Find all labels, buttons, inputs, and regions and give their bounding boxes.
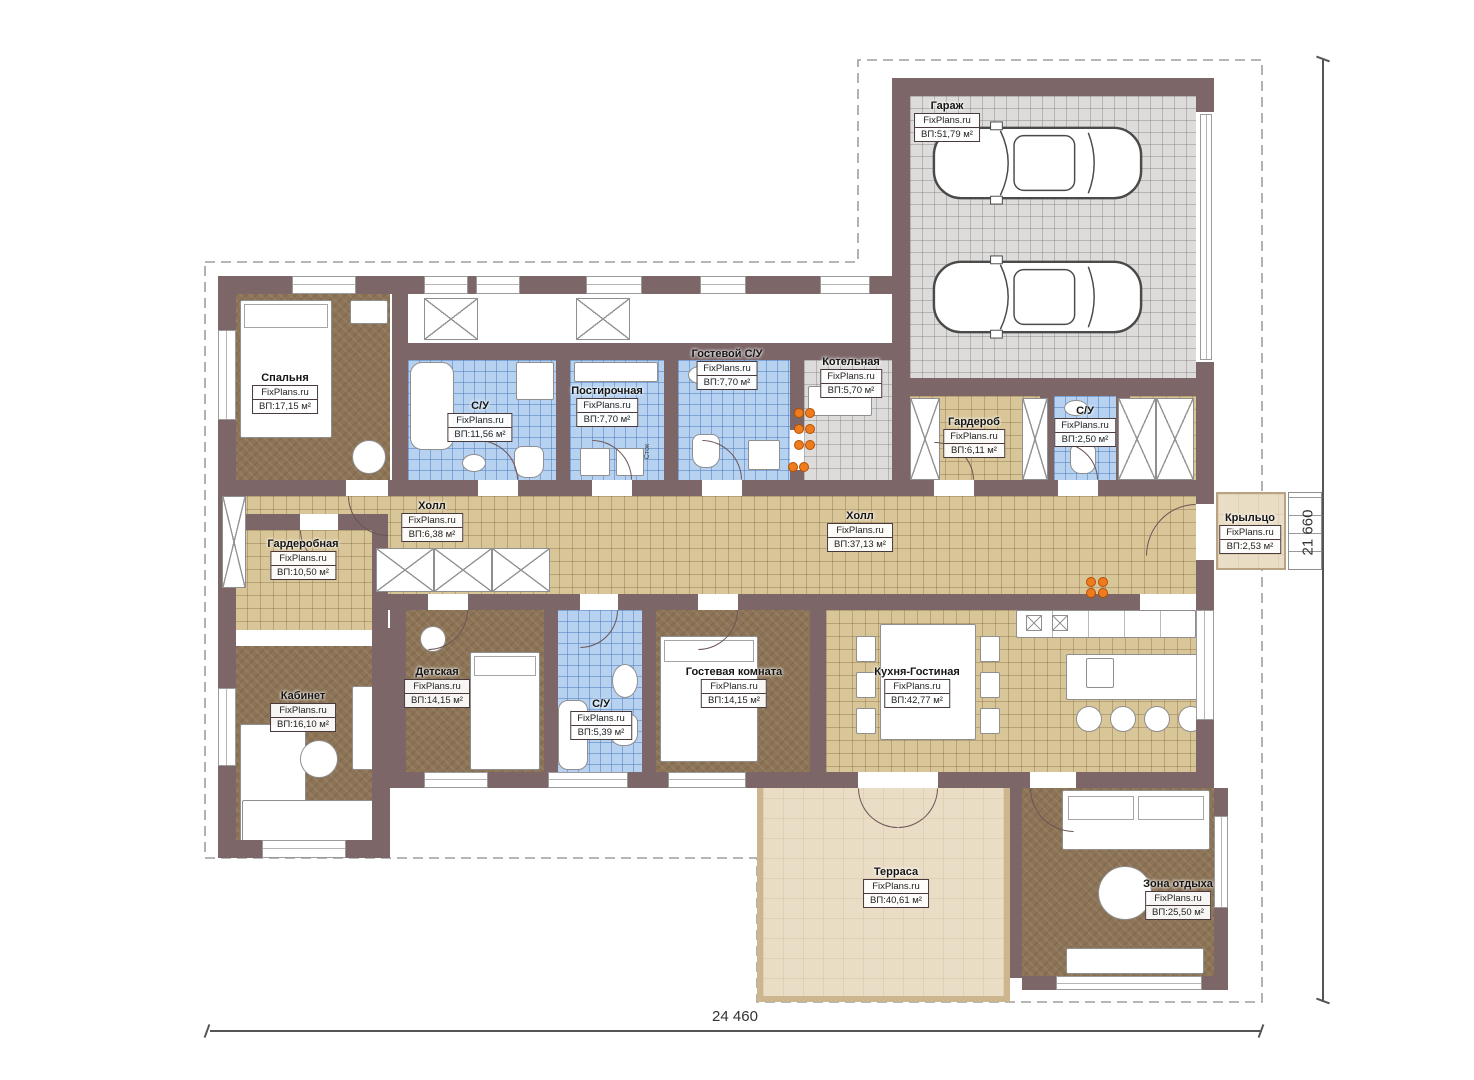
shower-icon [516,362,554,400]
cushion-icon [1068,796,1134,820]
window [424,772,488,788]
entrance-door-opening [1196,504,1214,560]
room-label-box: FixPlans.ruВП:11,56 м² [447,413,512,442]
room-name: Зона отдыха [1143,878,1213,890]
room-area: ВП:5,39 м² [571,726,631,739]
room-label-lounge: Зона отдыха FixPlans.ruВП:25,50 м² [1143,878,1213,920]
window [668,772,746,788]
room-label-box: FixPlans.ruВП:2,53 м² [1219,525,1281,554]
room-area: ВП:17,15 м² [253,400,317,413]
room-area: ВП:51,79 м² [915,128,979,141]
room-area: ВП:2,53 м² [1220,540,1280,553]
island-sink-icon [1086,658,1114,688]
room-label-box: FixPlans.ruВП:14,15 м² [701,679,767,708]
room-label-wc-garage: С/У FixPlans.ruВП:2,50 м² [1054,405,1116,447]
room-area: ВП:10,50 м² [271,566,335,579]
room-label-porch: Крыльцо FixPlans.ruВП:2,53 м² [1219,512,1281,554]
room-name: Терраса [863,866,929,878]
wall-segment [892,378,1214,396]
wall-segment [544,594,558,788]
window [586,276,642,294]
dimension-label-right: 21 660 [1300,483,1317,583]
cushion-icon [1138,796,1204,820]
radiator-icon [799,462,809,472]
wall-segment [642,594,656,788]
room-name: Крыльцо [1219,512,1281,524]
stool-icon [1110,706,1136,732]
room-area: ВП:42,77 м² [885,694,949,707]
chair-icon [856,636,876,662]
watermark-text: FixPlans.ru [253,386,317,400]
room-label-bath-main: С/У FixPlans.ruВП:11,56 м² [447,400,512,442]
wall-segment [892,78,910,482]
room-label-box: FixPlans.ruВП:7,70 м² [696,361,758,390]
room-label-laundry: Постирочная FixPlans.ruВП:7,70 м² [571,385,642,427]
chair-icon [980,672,1000,698]
window [820,276,870,294]
door-opening [934,480,974,496]
room-area: ВП:6,11 м² [944,444,1004,457]
room-label-wardrobe: Гардероб FixPlans.ruВП:6,11 м² [943,416,1005,458]
window [700,276,746,294]
watermark-text: FixPlans.ru [1146,892,1210,906]
room-label-dressing: Гардеробная FixPlans.ruВП:10,50 м² [267,538,338,580]
closet-icon [1156,398,1194,480]
room-name: Котельная [820,356,882,368]
room-area: ВП:37,13 м² [828,538,892,551]
dresser-icon [350,300,388,324]
door-opening [300,514,338,530]
kitchen-counter-icon [1016,610,1196,638]
watermark-text: FixPlans.ru [577,399,637,413]
window [1214,816,1228,908]
door-opening [428,594,468,610]
room-area: ВП:16,10 м² [271,718,335,731]
wall-segment [372,628,390,858]
room-label-kitchen: Кухня-Гостиная FixPlans.ruВП:42,77 м² [874,666,960,708]
dimension-line-bottom [210,1030,1262,1032]
watermark-text: FixPlans.ru [271,552,335,566]
watermark-text: FixPlans.ru [702,680,766,694]
door-opening [698,594,738,610]
closet-icon [376,548,434,592]
room-label-bedroom: Спальня FixPlans.ruВП:17,15 м² [252,372,318,414]
room-name: Детская [404,666,470,678]
room-label-box: FixPlans.ruВП:42,77 м² [884,679,950,708]
watermark-text: FixPlans.ru [821,370,881,384]
door-opening [1030,772,1076,788]
radiator-icon [805,440,815,450]
wall-segment [892,78,1214,96]
closet-icon [576,298,630,340]
room-name: С/У [447,400,512,412]
wall-segment [810,594,826,788]
room-label-box: FixPlans.ruВП:5,70 м² [820,369,882,398]
room-label-box: FixPlans.ruВП:37,13 м² [827,523,893,552]
stove-burner-icon [1098,588,1108,598]
room-name: Гостевая комната [686,666,782,678]
closet-icon [1022,398,1048,480]
wall-segment [372,594,1196,610]
stove-burner-icon [1086,588,1096,598]
room-label-box: FixPlans.ruВП:17,15 м² [252,385,318,414]
door-opening [1140,594,1196,610]
watermark-text: FixPlans.ru [405,680,469,694]
terrace-door-opening [858,772,938,788]
stove-burner-icon [1086,577,1096,587]
watermark-text: FixPlans.ru [271,704,335,718]
garage-door [1200,114,1212,360]
room-label-box: FixPlans.ruВП:6,11 м² [943,429,1005,458]
radiator-icon [794,424,804,434]
room-name: Гостевой С/У [692,348,763,360]
room-name: С/У [570,698,632,710]
closet-icon [1118,398,1156,480]
room-name: Гардеробная [267,538,338,550]
room-label-box: FixPlans.ruВП:40,61 м² [863,879,929,908]
radiator-icon [805,408,815,418]
watermark-text: FixPlans.ru [915,114,979,128]
room-label-office: Кабинет FixPlans.ruВП:16,10 м² [270,690,336,732]
wall-segment [1196,78,1214,112]
room-label-box: FixPlans.ruВП:6,38 м² [401,513,463,542]
window [476,276,520,294]
room-label-hall-main: Холл FixPlans.ruВП:37,13 м² [827,510,893,552]
stool-icon [1144,706,1170,732]
room-area: ВП:40,61 м² [864,894,928,907]
pillow-icon [244,304,328,328]
room-label-box: FixPlans.ruВП:10,50 м² [270,551,336,580]
closet-icon [434,548,492,592]
room-name: Гараж [914,100,980,112]
counter-icon [574,362,658,382]
closet-icon [222,496,246,588]
room-label-boiler: Котельная FixPlans.ruВП:5,70 м² [820,356,882,398]
door-opening [702,480,742,496]
dimension-line-right [1322,60,1324,1002]
chair-icon [980,708,1000,734]
door-opening [592,480,632,496]
car-icon [930,252,1145,342]
room-name: С/У [1054,405,1116,417]
room-label-terrace: Терраса FixPlans.ruВП:40,61 м² [863,866,929,908]
watermark-text: FixPlans.ru [697,362,757,376]
door-opening [346,480,388,496]
wall-segment [556,343,570,496]
watermark-text: FixPlans.ru [448,414,511,428]
room-label-box: FixPlans.ruВП:7,70 м² [576,398,638,427]
window [548,772,628,788]
room-name: Постирочная [571,385,642,397]
window [218,330,236,420]
room-label-guest-room: Гостевая комната FixPlans.ruВП:14,15 м² [686,666,782,708]
closet-icon [492,548,550,592]
watermark-text: FixPlans.ru [1055,419,1115,433]
room-name: Кабинет [270,690,336,702]
stool-icon [1076,706,1102,732]
room-area: ВП:2,50 м² [1055,433,1115,446]
room-label-kids: Детская FixPlans.ruВП:14,15 м² [404,666,470,708]
room-label-box: FixPlans.ruВП:2,50 м² [1054,418,1116,447]
window [262,840,346,858]
door-opening [580,594,618,610]
watermark-text: FixPlans.ru [944,430,1004,444]
watermark-text: FixPlans.ru [1220,526,1280,540]
radiator-icon [794,408,804,418]
wall-segment [664,343,678,496]
pillow-icon [474,656,536,676]
chair-icon [352,440,386,474]
watermark-text: FixPlans.ru [828,524,892,538]
radiator-icon [788,462,798,472]
watermark-text: FixPlans.ru [885,680,949,694]
room-label-box: FixPlans.ruВП:25,50 м² [1145,891,1211,920]
tv-console-icon [1066,948,1204,974]
door-opening [478,480,518,496]
watermark-text: FixPlans.ru [402,514,462,528]
room-area: ВП:14,15 м² [702,694,766,707]
dimension-label-bottom: 24 460 [712,1008,758,1025]
room-name: Холл [401,500,463,512]
radiator-icon [805,424,815,434]
stove-burner-icon [1098,577,1108,587]
washer-icon [748,440,780,470]
room-name: Кухня-Гостиная [874,666,960,678]
room-label-guest-wc: Гостевой С/У FixPlans.ruВП:7,70 м² [692,348,763,390]
room-name: Гардероб [943,416,1005,428]
table-icon [300,740,338,778]
chair-icon [980,636,1000,662]
sink-icon [612,664,638,698]
window [218,688,236,766]
window [1056,976,1202,990]
room-label-hall-small: Холл FixPlans.ruВП:6,38 м² [401,500,463,542]
radiator-icon [794,440,804,450]
floor-plan-canvas: Сток Гараж FixPlans.ruВП:51,79 м² Спальн… [0,0,1474,1080]
room-area: ВП:14,15 м² [405,694,469,707]
room-label-box: FixPlans.ruВП:16,10 м² [270,703,336,732]
sink-icon [1052,615,1068,631]
room-label-box: FixPlans.ruВП:5,39 м² [570,711,632,740]
chair-icon [856,708,876,734]
chair-icon [856,672,876,698]
room-label-wc-mid: С/У FixPlans.ruВП:5,39 м² [570,698,632,740]
room-area: ВП:7,70 м² [577,413,637,426]
watermark-text: FixPlans.ru [864,880,928,894]
toilet-icon [514,446,544,478]
wall-segment [1010,788,1022,978]
watermark-text: FixPlans.ru [571,712,631,726]
window [292,276,356,294]
room-label-box: FixPlans.ruВП:51,79 м² [914,113,980,142]
sink-icon [1026,615,1042,631]
door-opening [1058,480,1098,496]
closet-icon [424,298,478,340]
wall-segment [790,343,804,496]
shaft-label: Сток [644,444,651,459]
sofa-icon [242,800,382,842]
room-area: ВП:6,38 м² [402,528,462,541]
room-label-box: FixPlans.ruВП:14,15 м² [404,679,470,708]
room-area: ВП:11,56 м² [448,428,511,441]
wall-segment [392,276,408,496]
room-area: ВП:7,70 м² [697,376,757,389]
room-name: Холл [827,510,893,522]
window [1196,610,1214,720]
room-label-garage: Гараж FixPlans.ruВП:51,79 м² [914,100,980,142]
room-area: ВП:5,70 м² [821,384,881,397]
room-area: ВП:25,50 м² [1146,906,1210,919]
window [424,276,468,294]
room-name: Спальня [252,372,318,384]
